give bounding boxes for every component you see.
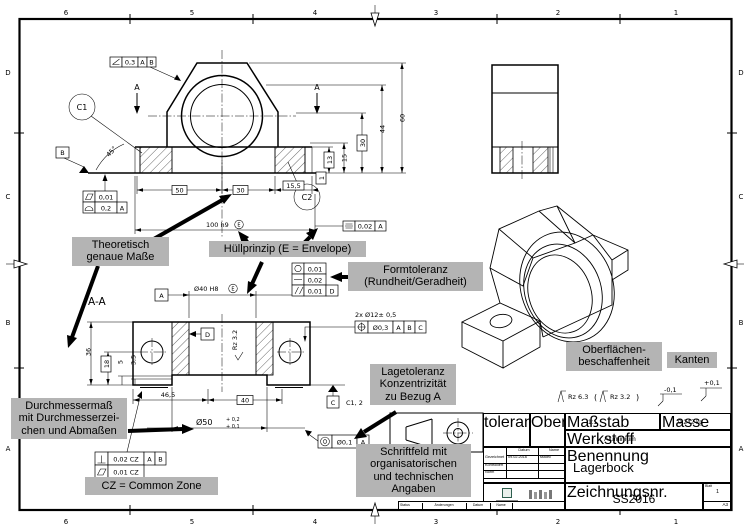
paren-close: ) — [636, 393, 639, 402]
svg-text:60: 60 — [399, 114, 407, 122]
grid-col: 3 — [434, 518, 438, 526]
svg-text:D: D — [329, 288, 334, 296]
label-cz: CZ = Common Zone — [85, 477, 218, 495]
svg-text:3,5: 3,5 — [130, 355, 138, 365]
format-value: A3 — [704, 501, 730, 507]
edge-icon — [658, 394, 682, 406]
svg-text:0,02: 0,02 — [308, 277, 322, 285]
holes-note: 2x Ø12± 0,5 Ø0,3 A B C — [303, 311, 426, 342]
dim-35: 3,5 — [130, 355, 138, 365]
svg-text:C: C — [418, 324, 423, 332]
revision-strip: Status Änderungen Datum Name — [398, 501, 565, 510]
svg-text:0,01: 0,01 — [308, 266, 322, 274]
dim-50-text: Ø50 — [196, 417, 212, 427]
edge-icon — [700, 388, 722, 401]
dim-30v-boxed: 30 — [357, 135, 367, 151]
dim-50-upper-tol: + 0,2 — [226, 417, 240, 423]
dim-40-text: Ø40 H8 — [194, 285, 218, 293]
designation-value: Lagerbock — [573, 460, 634, 475]
datum-header2: Datum — [465, 503, 491, 511]
datum-d: D — [189, 328, 214, 340]
title-block: Allgemein- toleranz ISO 2768-mK Oberfläc… — [483, 413, 731, 510]
centering-arrow-top — [371, 5, 379, 26]
scale-cell: Maßstab 1:1 — [565, 413, 660, 430]
svg-text:0,01: 0,01 — [308, 288, 322, 296]
mass-value: 0,242 kg — [678, 419, 703, 426]
tol-value: 0,2 — [101, 205, 111, 213]
datum-label: B — [60, 149, 64, 157]
section-cut-marks: A A — [134, 83, 320, 114]
datum-b: B — [56, 147, 89, 173]
rz-value-2: Rz 3.2 — [610, 393, 630, 401]
dim-50-boxed: 50 — [172, 186, 187, 195]
surface-finish-note: Rz 6.3 ( Rz 3.2 ) — [558, 391, 639, 402]
balloon-c1: C1 — [69, 94, 142, 153]
svg-text:B: B — [158, 456, 162, 464]
svg-text:0,02 CZ: 0,02 CZ — [113, 456, 139, 464]
grid-row: B — [6, 319, 11, 327]
dim-bore-40: A Ø40 H8 E — [155, 281, 305, 318]
mass-cell: Masse 0,242 kg — [660, 413, 731, 430]
angularity-tolerance-frame: 0,3 A B — [110, 57, 181, 81]
balloon-label: C1 — [77, 103, 88, 112]
material-value: Aluminium — [604, 436, 636, 443]
surface-rz-callout: Rz 3.2 — [231, 330, 243, 360]
svg-text:1: 1 — [318, 176, 326, 180]
svg-text:30: 30 — [359, 139, 367, 147]
svg-text:Ø0,1: Ø0,1 — [337, 439, 352, 447]
dim-40-boxed: 40 — [237, 396, 253, 405]
grid-col: 6 — [64, 518, 69, 526]
label-formtoleranz: Formtoleranz (Rundheit/Geradheit) — [348, 262, 483, 291]
datum-c: C C1, 2 — [310, 385, 363, 408]
grid-col: 6 — [64, 9, 69, 17]
label-theoretisch: Theoretisch genaue Maße — [72, 237, 169, 266]
grid-row: A — [739, 445, 744, 453]
grid-row: C — [739, 193, 744, 201]
chamfer-angle-dim: 45° — [96, 144, 124, 170]
tol-datum: A — [140, 59, 145, 67]
svg-text:A: A — [159, 292, 164, 300]
centering-arrow-right — [724, 260, 744, 268]
grid-col: 5 — [190, 9, 194, 17]
status-header: Status — [399, 503, 423, 511]
datum-c-note: C1, 2 — [346, 399, 363, 407]
technical-drawing-page: 6 5 4 3 2 1 6 5 4 3 2 1 D C B A D C B A — [0, 0, 750, 530]
grid-rows-right: D C B A — [738, 69, 743, 453]
grid-columns-bottom: 6 5 4 3 2 1 — [64, 518, 678, 526]
section-left-dims: 36 18 5 3,5 — [85, 322, 173, 385]
grid-rows-left: D C B A — [5, 69, 10, 453]
roughness-icon — [600, 391, 608, 402]
holes-text: 2x Ø12± 0,5 — [355, 311, 396, 319]
envelope-icon: E — [237, 223, 240, 229]
svg-text:A: A — [378, 223, 383, 231]
svg-text:44: 44 — [379, 125, 387, 133]
centering-arrow-left — [6, 260, 27, 268]
form-tolerance-stack: 0,01 0,02 0,01 D — [292, 263, 338, 296]
label-lagetoleranz: Lagetoleranz Konzentrizität zu Bezug A — [370, 364, 456, 405]
paren-open: ( — [594, 393, 597, 402]
general-tolerance-cell: Allgemein- toleranz ISO 2768-mK — [483, 413, 530, 447]
dim-30-boxed: 30 — [233, 186, 248, 195]
svg-text:40: 40 — [241, 397, 249, 405]
grid-col: 2 — [556, 9, 560, 17]
side-view — [492, 65, 558, 180]
dim-100h9-text: 100 h9 — [206, 221, 229, 229]
grid-col: 4 — [313, 9, 318, 17]
svg-text:30: 30 — [236, 187, 244, 195]
designation-cell: Benennung Lagerbock — [565, 447, 731, 483]
label-kanten: Kanten — [667, 352, 717, 368]
front-dim-100h9: 100 h9 E 0,02 A — [135, 176, 386, 234]
obf-label: Oberfläche — [531, 414, 565, 432]
grid-col: 5 — [190, 518, 194, 526]
edge-plus-value: +0,1 — [704, 379, 720, 387]
surface-check-icon — [235, 352, 243, 360]
material-cell: Werkstoff Aluminium — [565, 430, 731, 447]
allg-label2: toleranz — [484, 414, 530, 432]
dim-44: 44 — [379, 125, 387, 133]
dim-5: 5 — [117, 360, 125, 364]
svg-text:18: 18 — [103, 360, 111, 368]
grid-col: 4 — [313, 518, 318, 526]
svg-text:D: D — [205, 331, 210, 339]
dim-18-boxed: 18 — [101, 356, 111, 372]
dim-60: 60 — [399, 114, 407, 122]
svg-text:5: 5 — [117, 360, 125, 364]
symmetry-tolerance-frame: 0,02 A — [315, 221, 386, 231]
dim-45: 45° — [105, 145, 119, 159]
svg-text:15: 15 — [341, 154, 349, 162]
drawing-number-value: SS2016 — [566, 492, 702, 506]
label-oberflaechen: Oberflächen- beschaffenheit — [566, 342, 662, 371]
row-norm-label: Norm — [484, 470, 507, 479]
tol-datum: A — [120, 205, 125, 213]
grid-row: B — [739, 319, 744, 327]
drawing-number-cell: Zeichnungsnr. SS2016 — [565, 483, 703, 510]
envelope-icon: E — [231, 287, 234, 293]
scale-label: Maßstab — [567, 414, 629, 430]
scale-value: 1:1 — [588, 419, 597, 426]
roughness-icon — [558, 391, 566, 402]
dim-1-boxed: 1 — [316, 172, 326, 184]
svg-text:0,02: 0,02 — [358, 223, 372, 231]
balloon-label: C2 — [302, 193, 313, 202]
rz-value-1: Rz 6.3 — [568, 393, 588, 401]
svg-text:B: B — [407, 324, 411, 332]
label-huellprinzip: Hüllprinzip (E = Envelope) — [209, 241, 366, 257]
flatness-profile-frames: 0,01 0,2 A — [83, 174, 127, 213]
grid-col: 1 — [674, 9, 678, 17]
svg-text:36: 36 — [85, 348, 93, 356]
front-view: A A 0,3 A B B 45° C1 — [56, 50, 407, 237]
sheet-cell: Blatt 1 A3 — [703, 483, 731, 510]
front-vertical-dims: 13 15 30 44 60 1 — [249, 63, 407, 184]
surface-standard-cell: Oberfläche ISO 1302 — [530, 413, 565, 447]
svg-text:13: 13 — [326, 156, 334, 164]
cut-label-right: A — [314, 83, 320, 92]
svg-text:A: A — [147, 456, 152, 464]
dim-15: 15 — [341, 154, 349, 162]
svg-text:C: C — [331, 399, 336, 407]
aenderungen-header: Änderungen — [421, 503, 467, 511]
edge-minus-value: -0,1 — [664, 386, 677, 394]
dim-465: 46,5 — [161, 391, 175, 399]
svg-text:0,01 CZ: 0,01 CZ — [113, 469, 139, 477]
svg-text:Ø0,3: Ø0,3 — [373, 324, 388, 332]
centering-arrow-bottom — [371, 503, 379, 524]
cut-label-left: A — [134, 83, 140, 92]
svg-text:50: 50 — [175, 187, 183, 195]
label-schriftfeld: Schriftfeld mit organisatorischen und te… — [356, 444, 471, 497]
edge-condition-note: -0,1 +0,1 — [658, 379, 722, 406]
section-title: A-A — [88, 296, 107, 308]
signature-table: Datum Name Gezeichnet 09.02.2016 sstoec … — [483, 447, 565, 483]
label-durchmesser: Durchmessermaß mit Durchmesserzei- chen … — [11, 398, 127, 439]
grid-row: A — [6, 445, 11, 453]
sheet-value: 1 — [716, 489, 719, 495]
grid-row: C — [6, 193, 11, 201]
svg-text:Rz 3.2: Rz 3.2 — [231, 330, 239, 350]
tol-value: 0,3 — [125, 59, 135, 67]
grid-col: 3 — [434, 9, 438, 17]
section-bottom-dims: 46,5 40 — [133, 389, 282, 405]
dim-36: 36 — [85, 348, 93, 356]
tol-datum: B — [149, 59, 153, 67]
svg-text:A: A — [396, 324, 401, 332]
dim-155-boxed: 15,5 — [283, 181, 304, 190]
svg-text:15,5: 15,5 — [286, 182, 300, 190]
dim-50-lower-tol: + 0,1 — [226, 424, 240, 430]
name-header2: Name — [489, 503, 513, 511]
grid-row: D — [5, 69, 10, 77]
grid-col: 2 — [556, 518, 560, 526]
grid-col: 1 — [674, 518, 678, 526]
dim-13-boxed: 13 — [324, 152, 334, 168]
tol-value: 0,01 — [99, 194, 113, 202]
grid-row: D — [738, 69, 743, 77]
sheet-label: Blatt — [705, 484, 712, 488]
